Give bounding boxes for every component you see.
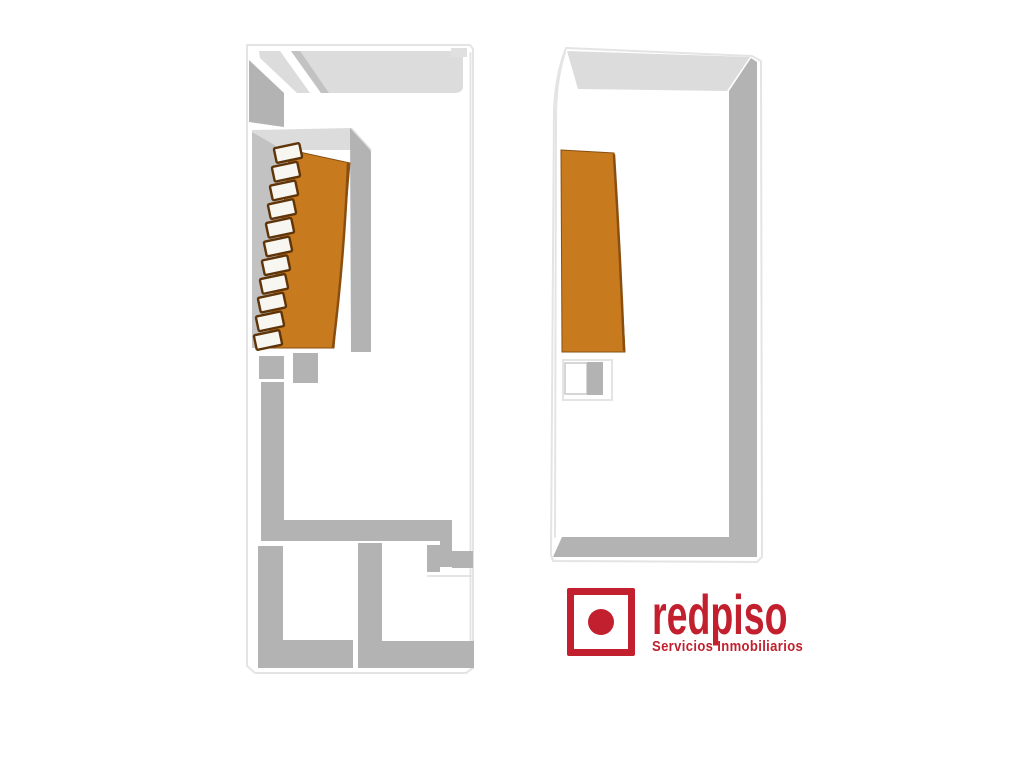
right-plan-right-wall <box>729 58 757 557</box>
logo-text: redpiso Servicios Inmobiliarios <box>652 587 854 655</box>
door-stub-wall <box>427 545 440 572</box>
redpiso-logo: redpiso Servicios Inmobiliarios <box>565 585 835 667</box>
middle-left-wall <box>261 382 284 541</box>
brand-tagline: Servicios Inmobiliarios <box>652 639 834 655</box>
right-plan-bottom-wall <box>553 537 757 557</box>
logo-dot-icon <box>588 609 614 635</box>
fixture-block <box>587 362 603 395</box>
floor-plan-left <box>247 45 474 673</box>
middle-wall-step-vertical <box>440 520 452 567</box>
landing-wall-block <box>293 353 318 383</box>
bottom-left-wall-horizontal <box>258 640 353 668</box>
brand-name: redpiso <box>652 587 788 643</box>
middle-horizontal-wall <box>283 520 444 541</box>
floor-plan-image: redpiso Servicios Inmobiliarios <box>0 0 1024 768</box>
left-plan-top-right-notch <box>451 48 467 57</box>
bottom-right-wall-horizontal <box>358 641 474 668</box>
floor-plans-canvas <box>0 0 1024 768</box>
fixture-cell <box>565 363 587 394</box>
logo-square-icon <box>567 588 635 656</box>
floor-plan-right <box>551 48 762 562</box>
landing-wall-small <box>259 356 284 379</box>
middle-wall-step-horizontal <box>452 551 473 568</box>
stair-enclosure-right-wall <box>350 128 371 352</box>
right-plan-top-wall <box>567 51 750 91</box>
